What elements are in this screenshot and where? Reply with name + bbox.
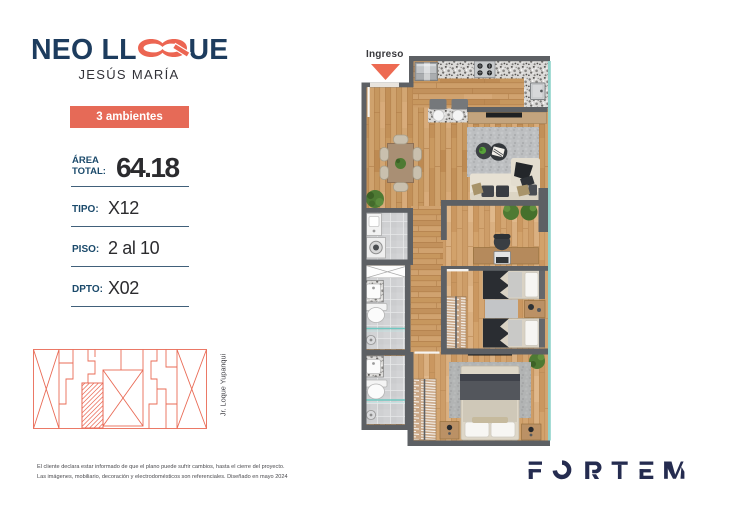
svg-text:NEO LL: NEO LL [31, 34, 137, 66]
svg-text:UE: UE [189, 34, 229, 66]
